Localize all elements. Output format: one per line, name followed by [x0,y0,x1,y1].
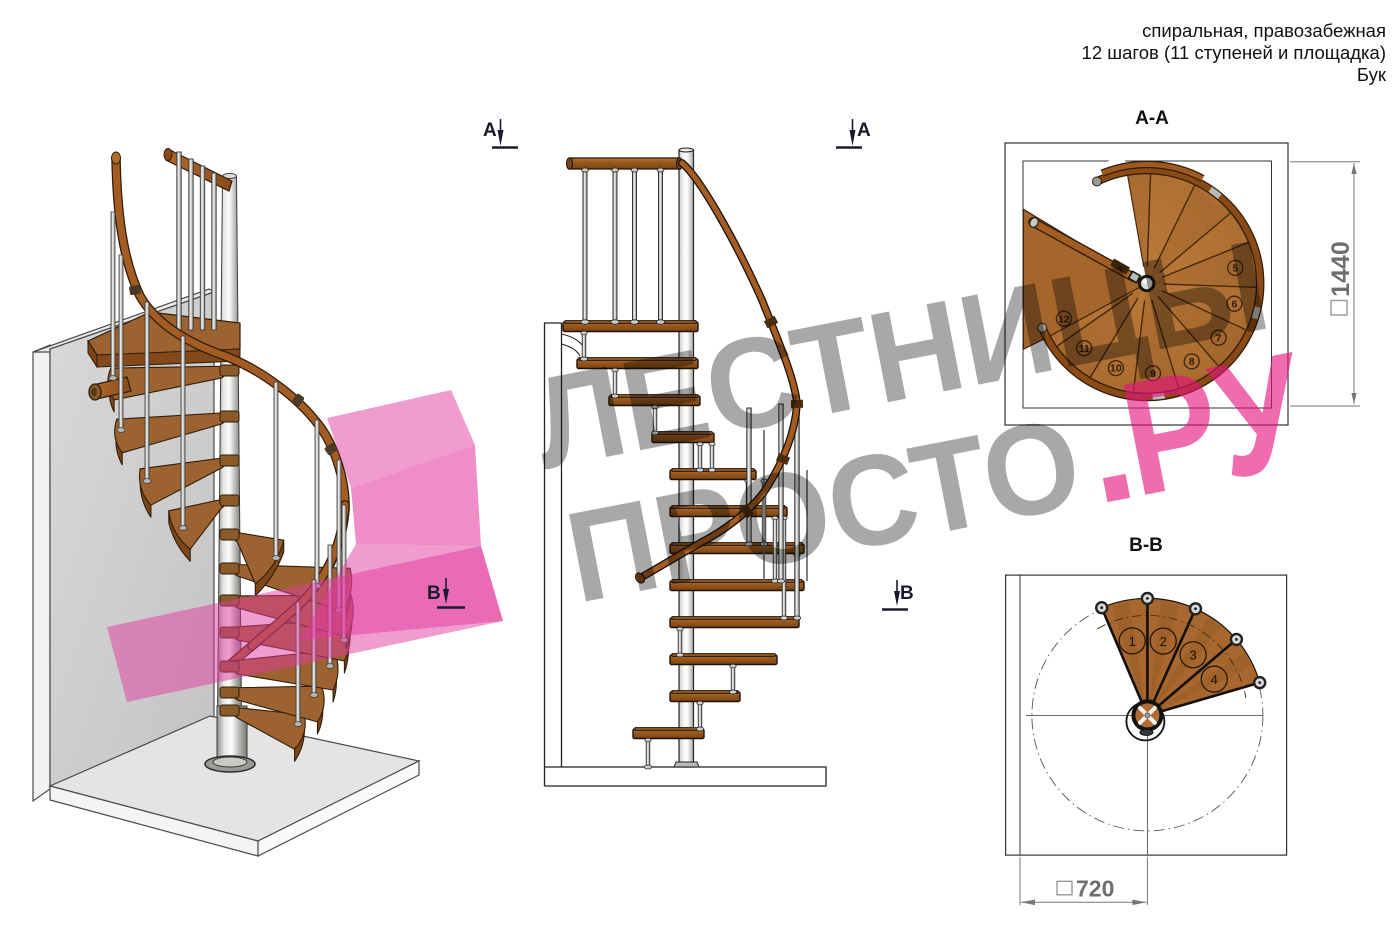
svg-text:А-А: А-А [1135,108,1169,129]
svg-text:1440: 1440 [1327,241,1355,297]
svg-text:B: B [900,583,914,604]
svg-text:720: 720 [1076,876,1114,902]
svg-text:РУ: РУ [1108,317,1321,531]
svg-text:Бук: Бук [1357,64,1387,85]
svg-text:A: A [483,120,497,141]
svg-text:A: A [857,120,871,141]
svg-text:3: 3 [1189,648,1196,663]
svg-text:12 шагов (11 ступеней и площад: 12 шагов (11 ступеней и площадка) [1082,42,1386,63]
svg-text:B: B [427,583,441,604]
svg-text:В-В: В-В [1129,535,1163,556]
svg-text:4: 4 [1211,672,1218,687]
svg-text:спиральная, правозабежная: спиральная, правозабежная [1142,20,1386,41]
svg-text:1: 1 [1129,634,1136,649]
svg-text:2: 2 [1160,634,1167,649]
